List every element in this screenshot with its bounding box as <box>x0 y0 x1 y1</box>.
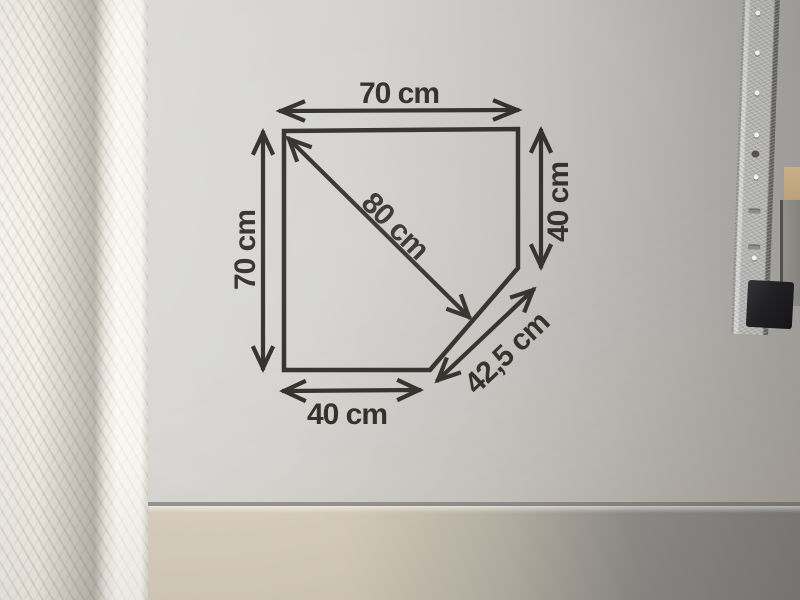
rail-hole <box>752 255 757 260</box>
table-edge-highlight <box>148 506 800 513</box>
rail-slot <box>748 208 760 213</box>
dim-label-bottom: 40 cm <box>307 398 387 431</box>
wallpaper-shadow <box>0 0 150 600</box>
dim-label-top: 70 cm <box>359 77 439 110</box>
dimension-diagram: 70 cm 70 cm 40 cm 40 cm 80 cm 42,5 cm <box>200 60 620 450</box>
rail-hole <box>754 132 759 137</box>
dim-label-right: 40 cm <box>542 162 575 242</box>
rail-hole <box>755 50 760 55</box>
rail-slot <box>748 244 760 249</box>
rail-rubber-foot <box>746 280 794 329</box>
dim-label-left: 70 cm <box>229 210 262 290</box>
table-edge <box>148 506 800 600</box>
rail-hole <box>754 174 759 179</box>
rail-hole-dark <box>751 150 759 157</box>
rail-hole <box>755 10 760 15</box>
rail-hole <box>754 90 759 95</box>
wallpaper-strip <box>0 0 150 600</box>
dim-label-diagonal: 80 cm <box>355 186 435 266</box>
